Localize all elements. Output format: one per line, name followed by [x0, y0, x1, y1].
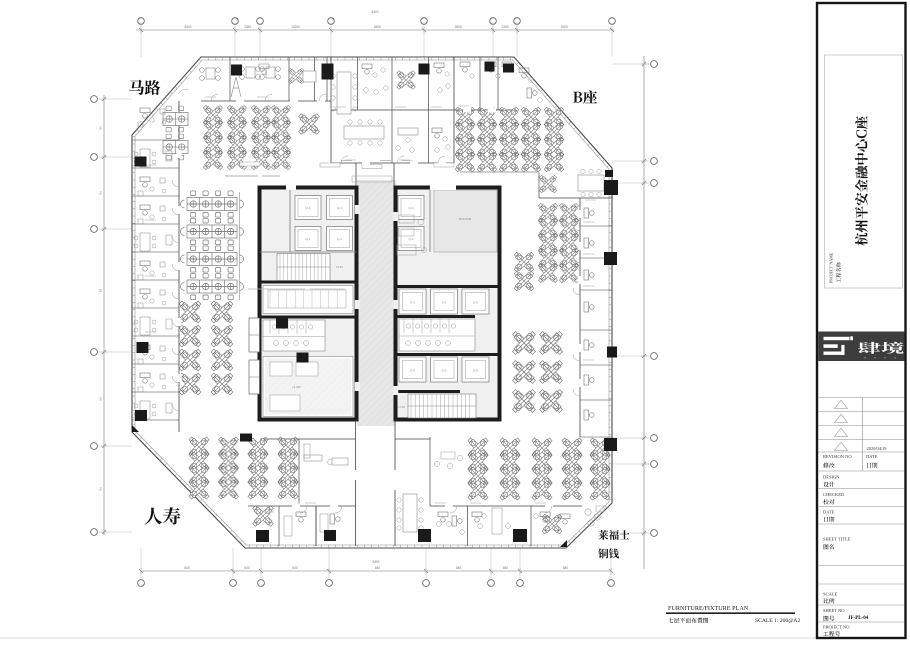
svg-text:2350: 2350 [244, 25, 251, 29]
svg-text:D-5: D-5 [442, 369, 447, 373]
svg-text:Q-1: Q-1 [305, 206, 310, 210]
svg-text:SHEET TITLE: SHEET TITLE [823, 537, 851, 542]
svg-text:8400: 8400 [374, 25, 381, 29]
svg-text:SCALE: SCALE [823, 592, 838, 597]
svg-text:SCALE 1: 200@A2: SCALE 1: 200@A2 [755, 618, 800, 624]
svg-text:840: 840 [375, 566, 381, 570]
svg-text:REVISION NO: REVISION NO [823, 454, 852, 459]
svg-text:LT-02: LT-02 [398, 405, 405, 409]
svg-text:Q-1: Q-1 [305, 237, 310, 241]
svg-text:Q-1: Q-1 [337, 206, 342, 210]
svg-text:CHECKED: CHECKED [823, 492, 845, 497]
svg-text:840: 840 [563, 566, 569, 570]
svg-text:DESIGN: DESIGN [823, 475, 840, 480]
svg-text:D-3: D-3 [473, 301, 478, 305]
svg-text:D-6: D-6 [473, 369, 478, 373]
svg-text:84: 84 [99, 289, 103, 293]
svg-text:PROJECT NO: PROJECT NO [823, 625, 850, 630]
svg-text:2020/04/19: 2020/04/19 [867, 446, 888, 451]
svg-text:SHEET NO: SHEET NO [823, 608, 845, 613]
svg-text:10200: 10200 [291, 25, 300, 29]
svg-text:JF-PL-04: JF-PL-04 [848, 616, 869, 621]
svg-text:8400: 8400 [372, 560, 379, 564]
svg-text:8400: 8400 [455, 25, 462, 29]
svg-text:Q-3: Q-3 [408, 206, 413, 210]
svg-text:8400: 8400 [184, 25, 191, 29]
svg-text:84: 84 [99, 487, 103, 491]
svg-text:8400: 8400 [561, 25, 568, 29]
svg-text:84: 84 [99, 126, 103, 130]
svg-text:PROJECT NAME: PROJECT NAME [829, 252, 834, 283]
svg-text:DATE: DATE [823, 510, 835, 515]
svg-text:Q-1: Q-1 [337, 237, 342, 241]
svg-text:84: 84 [99, 397, 103, 401]
svg-text:D-1: D-1 [410, 301, 415, 305]
svg-text:840: 840 [503, 566, 509, 570]
svg-text:840: 840 [292, 566, 298, 570]
svg-text:+3.300: +3.300 [292, 385, 301, 389]
svg-text:2350: 2350 [501, 25, 508, 29]
svg-text:DATE: DATE [866, 454, 878, 459]
svg-text:Q-3: Q-3 [408, 237, 413, 241]
svg-text:MAU RM: MAU RM [459, 217, 472, 221]
svg-text:D-4: D-4 [410, 369, 415, 373]
svg-text:840: 840 [184, 566, 190, 570]
svg-text:FURNITURE/FIXTURE PLAN: FURNITURE/FIXTURE PLAN [668, 605, 749, 612]
svg-text:84: 84 [99, 191, 103, 195]
svg-text:840: 840 [456, 566, 462, 570]
svg-text:D-2: D-2 [442, 301, 447, 305]
svg-text:840: 840 [244, 566, 250, 570]
svg-text:8400: 8400 [371, 10, 378, 14]
svg-text:LT-01: LT-01 [336, 265, 343, 269]
